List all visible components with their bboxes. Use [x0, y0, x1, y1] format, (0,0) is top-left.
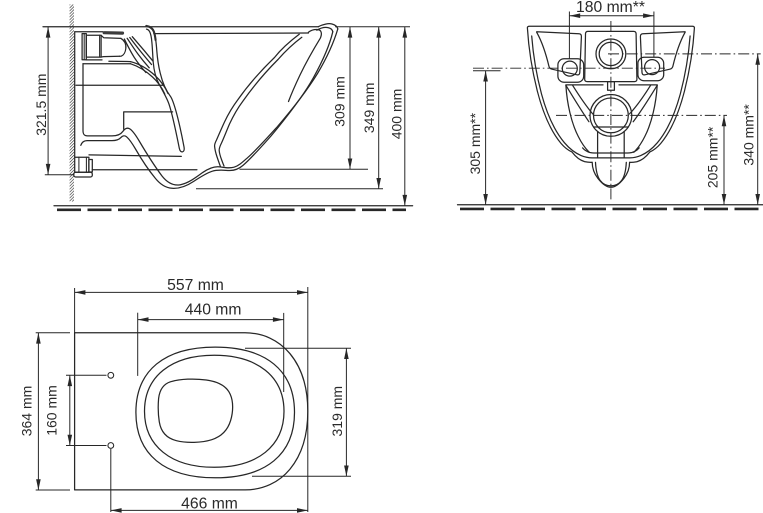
svg-text:160 mm: 160 mm — [43, 385, 59, 436]
svg-text:440 mm: 440 mm — [185, 302, 242, 319]
svg-text:364 mm: 364 mm — [18, 386, 34, 437]
svg-text:180 mm**: 180 mm** — [576, 0, 645, 16]
svg-text:340 mm**: 340 mm** — [741, 104, 757, 166]
svg-text:305 mm**: 305 mm** — [467, 112, 483, 174]
svg-text:205 mm**: 205 mm** — [704, 126, 720, 188]
svg-text:321.5 mm: 321.5 mm — [33, 74, 49, 136]
svg-text:309 mm: 309 mm — [331, 76, 347, 127]
svg-text:466 mm: 466 mm — [181, 495, 238, 512]
svg-text:319 mm: 319 mm — [329, 386, 345, 437]
svg-text:557 mm: 557 mm — [167, 277, 224, 294]
svg-text:400 mm: 400 mm — [388, 89, 404, 140]
svg-text:349 mm: 349 mm — [361, 83, 377, 134]
